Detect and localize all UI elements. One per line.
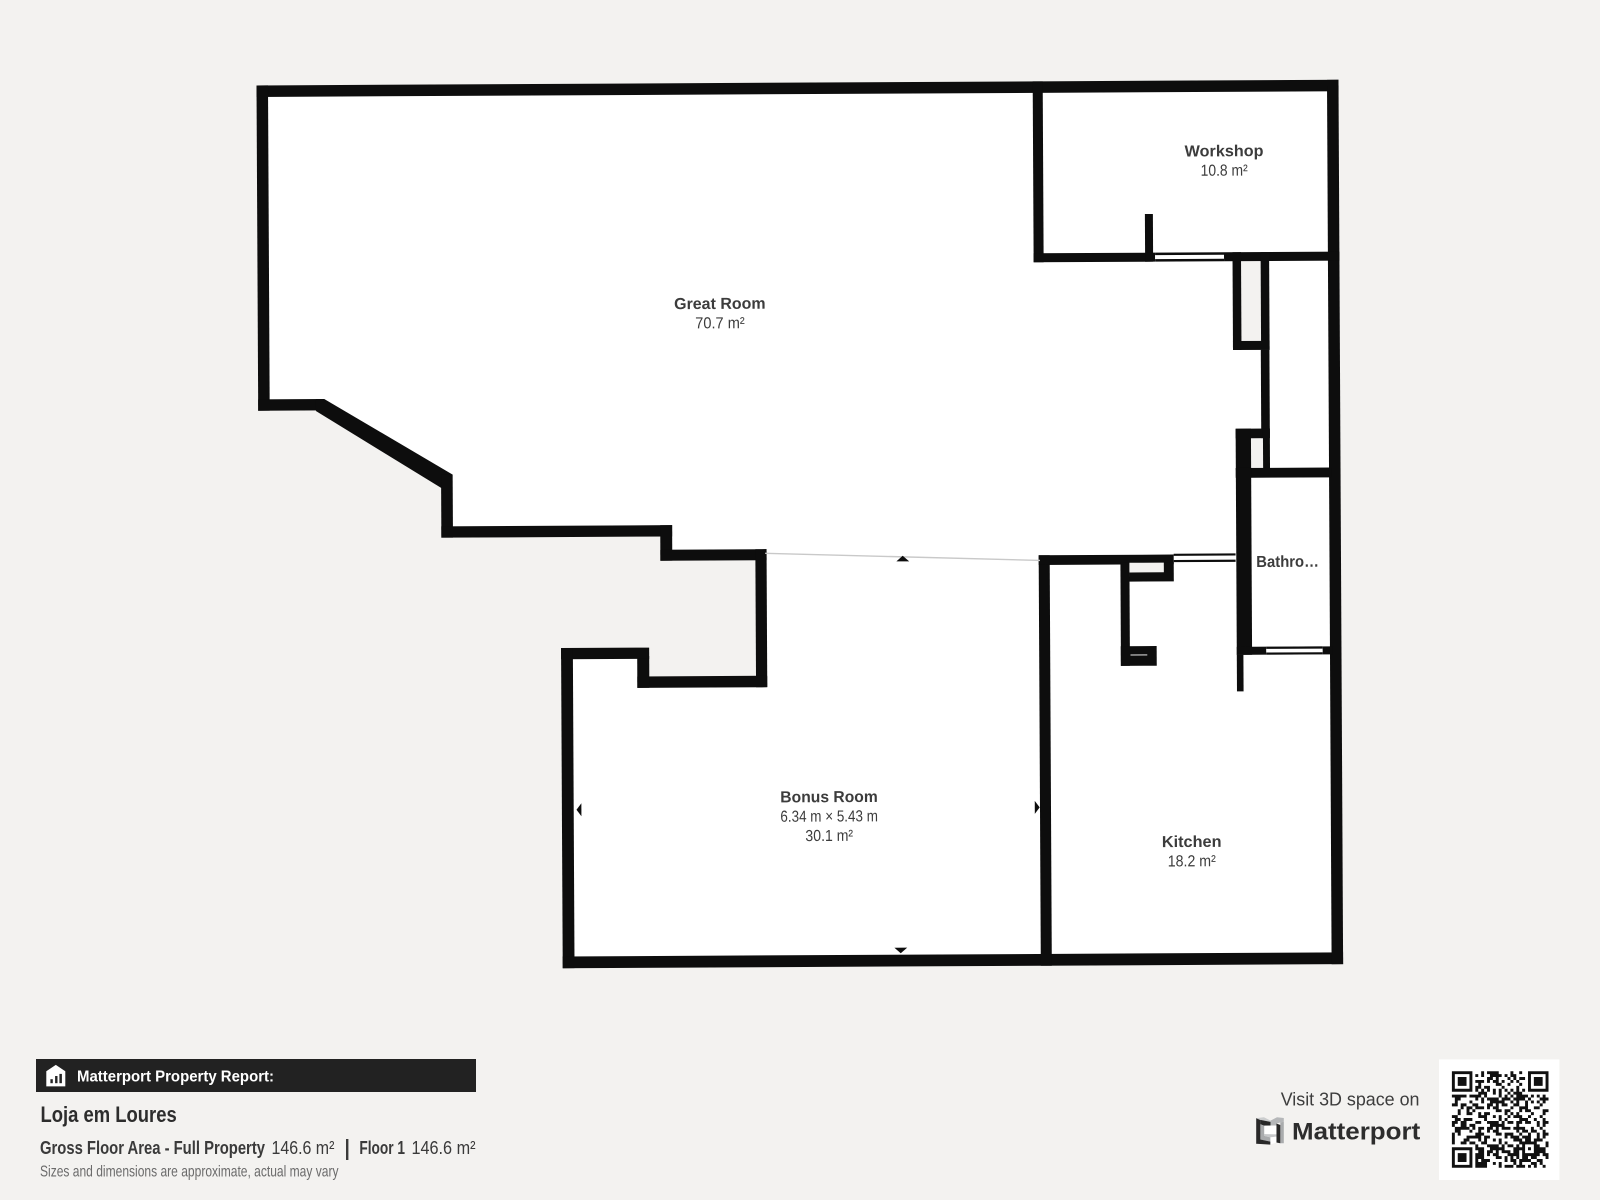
svg-text:70.7 m²: 70.7 m² <box>695 315 745 332</box>
svg-text:10.8 m²: 10.8 m² <box>1201 163 1249 180</box>
svg-text:146.6 m²: 146.6 m² <box>272 1137 335 1158</box>
svg-text:Bonus Room: Bonus Room <box>780 789 878 807</box>
svg-text:Loja em Loures: Loja em Loures <box>41 1102 177 1127</box>
svg-text:146.6 m²: 146.6 m² <box>412 1137 476 1158</box>
svg-text:Kitchen: Kitchen <box>1162 834 1222 851</box>
svg-text:Visit 3D space on: Visit 3D space on <box>1281 1089 1420 1110</box>
svg-text:18.2 m²: 18.2 m² <box>1168 853 1217 870</box>
svg-text:Workshop: Workshop <box>1185 143 1264 160</box>
svg-text:Bathro…: Bathro… <box>1256 554 1319 571</box>
svg-text:Gross Floor Area - Full Proper: Gross Floor Area - Full Property <box>40 1137 266 1158</box>
svg-text:Floor 1: Floor 1 <box>359 1137 405 1158</box>
svg-text:Sizes and dimensions are appro: Sizes and dimensions are approximate, ac… <box>40 1164 339 1181</box>
svg-text:Matterport Property Report:: Matterport Property Report: <box>77 1068 274 1085</box>
svg-text:Matterport: Matterport <box>1292 1119 1420 1145</box>
svg-text:Great Room: Great Room <box>674 296 766 313</box>
svg-text:30.1 m²: 30.1 m² <box>805 828 853 845</box>
svg-text:6.34 m × 5.43 m: 6.34 m × 5.43 m <box>780 808 878 826</box>
